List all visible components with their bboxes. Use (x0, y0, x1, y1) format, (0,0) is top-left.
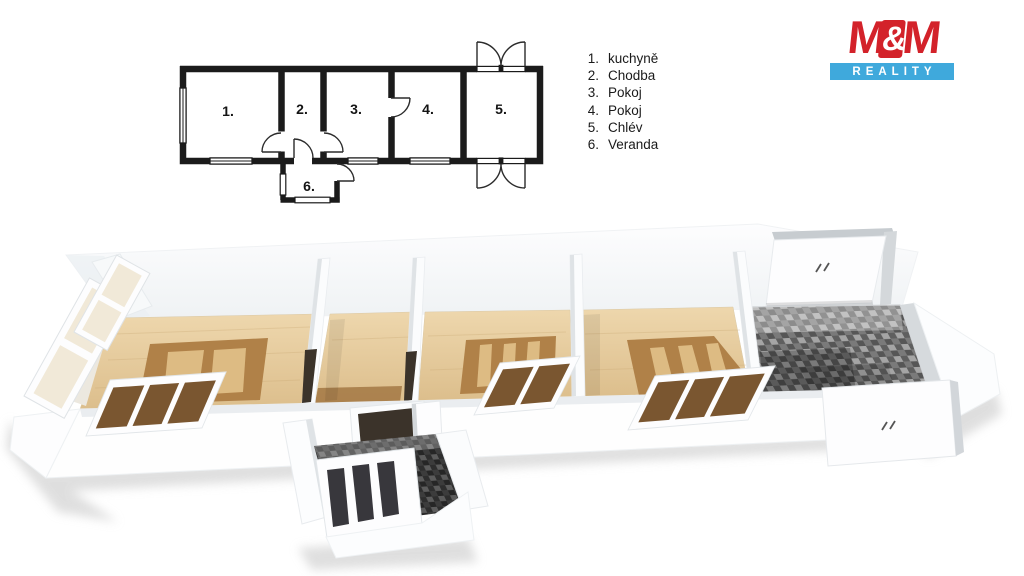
legend-number: 6. (579, 136, 599, 153)
door-arc-room3 (324, 133, 343, 152)
plan-room1-number: 1. (222, 103, 234, 119)
plan-room2-number: 2. (296, 101, 308, 117)
plan-windows (180, 88, 450, 203)
legend-number: 1. (579, 50, 599, 67)
floorplan-3d (6, 224, 1002, 570)
logo-wordmark: M&M (827, 14, 956, 62)
plan-room3-number: 3. (350, 101, 362, 117)
legend-number: 3. (579, 84, 599, 101)
legend-item-6: 6. Veranda (579, 136, 658, 153)
legend-item-4: 4. Pokoj (579, 102, 658, 119)
real-estate-floorplan-page: 1. 2. 3. 4. 5. 6. (0, 0, 1024, 576)
door-arc-room2-veranda (294, 139, 313, 158)
door-arc-veranda-exterior (337, 164, 354, 181)
plan-room4-number: 4. (422, 101, 434, 117)
legend-item-5: 5. Chlév (579, 119, 658, 136)
plan-room6-number: 6. (303, 178, 315, 194)
window-room6-bottom (295, 197, 330, 203)
legend-label: Chodba (608, 67, 655, 84)
room1-window-panes (96, 380, 216, 428)
legend-item-3: 3. Pokoj (579, 84, 658, 101)
logo-tagline: REALITY (830, 63, 954, 80)
legend-number: 4. (579, 102, 599, 119)
room5-front-door (822, 380, 964, 466)
logo-m-right: M (900, 11, 939, 63)
plan-walls (180, 66, 543, 200)
legend-item-2: 2. Chodba (579, 67, 658, 84)
legend-item-1: 1. kuchyně (579, 50, 658, 67)
legend-number: 2. (579, 67, 599, 84)
door-arc-room4 (391, 98, 410, 117)
legend-label: kuchyně (608, 50, 658, 67)
door-arc-room1 (262, 133, 281, 152)
legend-label: Chlév (608, 119, 643, 136)
legend-label: Veranda (608, 136, 658, 153)
legend-number: 5. (579, 119, 599, 136)
window-room6-left (280, 174, 286, 195)
floorplan-graphics: 1. 2. 3. 4. 5. 6. (0, 0, 1024, 576)
door-arcs-room5-bottom (477, 164, 525, 188)
room5-tile-floor (745, 305, 928, 394)
legend-label: Pokoj (608, 84, 642, 101)
door-arcs-room5-top (477, 42, 525, 66)
floorplan-2d: 1. 2. 3. 4. 5. 6. (180, 42, 543, 203)
plan-room5-number: 5. (495, 101, 507, 117)
legend: 1. kuchyně 2. Chodba 3. Pokoj 4. Pokoj 5… (579, 50, 658, 153)
legend-label: Pokoj (608, 102, 642, 119)
mm-reality-logo: M&M REALITY (830, 14, 954, 80)
